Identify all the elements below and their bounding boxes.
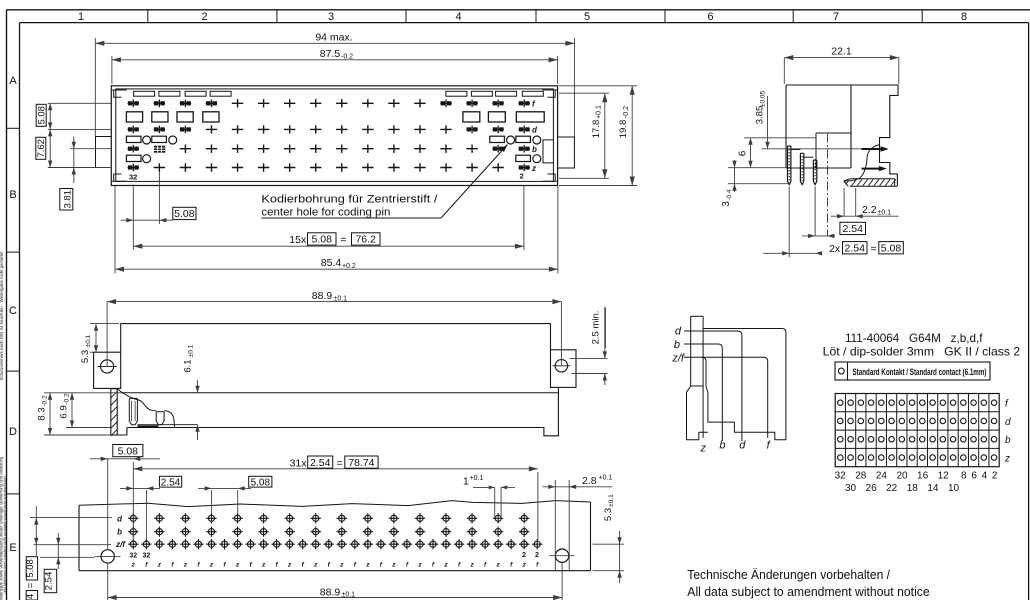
svg-text:b: b [532, 145, 537, 154]
svg-text:2: 2 [520, 172, 524, 181]
svg-text:und Mitteilung ihres Inhaltes: und Mitteilung ihres Inhaltes nicht gest… [3, 476, 7, 593]
svg-text:20: 20 [896, 471, 908, 482]
svg-text:10: 10 [948, 483, 960, 494]
svg-text:24: 24 [876, 471, 888, 482]
svg-text:12: 12 [938, 471, 950, 482]
svg-text:4: 4 [25, 594, 36, 599]
svg-text:2.2: 2.2 [862, 204, 877, 216]
svg-text:2.54: 2.54 [842, 223, 863, 235]
svg-text:Schutzvermerk nach DIN 34 beac: Schutzvermerk nach DIN 34 beachten · Wei… [0, 251, 4, 381]
svg-text:±0.05: ±0.05 [760, 91, 767, 108]
svg-text:4: 4 [455, 11, 461, 23]
svg-text:+0.1: +0.1 [596, 105, 603, 119]
svg-text:z: z [417, 562, 422, 569]
svg-text:2: 2 [535, 552, 539, 559]
svg-text:2.5 min.: 2.5 min. [591, 311, 602, 345]
svg-text:z: z [1004, 453, 1010, 464]
svg-text:19.8: 19.8 [618, 120, 629, 139]
svg-text:32: 32 [129, 552, 137, 559]
svg-text:3.81: 3.81 [62, 190, 73, 209]
svg-text:4: 4 [982, 471, 988, 482]
svg-text:z: z [157, 562, 162, 569]
svg-text:b: b [1005, 435, 1011, 446]
svg-text:z: z [496, 562, 501, 569]
svg-text:-0.2: -0.2 [64, 393, 71, 405]
svg-text:center hole for coding pin: center hole for coding pin [261, 207, 390, 219]
svg-text:d: d [675, 325, 682, 337]
svg-text:5.08: 5.08 [36, 106, 47, 125]
svg-text:8: 8 [961, 471, 967, 482]
svg-text:±0.1: ±0.1 [608, 494, 615, 507]
svg-text:8.3: 8.3 [37, 407, 48, 420]
svg-text:z/f: z/f [115, 540, 126, 549]
svg-text:b: b [719, 440, 725, 452]
svg-text:B: B [9, 189, 16, 201]
svg-text:z: z [131, 562, 136, 569]
svg-text:d: d [1005, 417, 1011, 428]
svg-text:d: d [739, 440, 746, 452]
svg-text:31x: 31x [290, 457, 308, 469]
svg-text:b: b [674, 339, 680, 351]
svg-text:z: z [469, 562, 474, 569]
svg-text:3.85: 3.85 [755, 106, 766, 125]
svg-text:5: 5 [584, 11, 590, 23]
svg-text:1: 1 [78, 11, 84, 23]
svg-text:=: = [25, 582, 36, 588]
svg-text:+0.2: +0.2 [342, 263, 356, 270]
svg-text:-0.2: -0.2 [42, 395, 49, 407]
svg-text:32: 32 [835, 471, 847, 482]
svg-text:2: 2 [992, 471, 998, 482]
svg-text:5.08: 5.08 [881, 243, 902, 255]
svg-text:±0.1: ±0.1 [85, 334, 92, 347]
svg-text:5.08: 5.08 [251, 477, 271, 488]
svg-text:85.4: 85.4 [321, 257, 342, 269]
svg-text:All data subject to amendment: All data subject to amendment without no… [687, 585, 929, 599]
svg-text:22.1: 22.1 [831, 45, 852, 57]
svg-text:2.54: 2.54 [310, 457, 331, 469]
svg-text:3: 3 [721, 201, 732, 207]
svg-text:2.54: 2.54 [844, 243, 865, 255]
svg-text:2.54: 2.54 [161, 477, 181, 488]
svg-text:5.08: 5.08 [311, 234, 332, 246]
svg-text:32: 32 [129, 172, 137, 181]
svg-text:6: 6 [737, 150, 748, 156]
svg-text:5.08: 5.08 [118, 445, 139, 457]
svg-text:Löt / dip-solder 3mm GK II /: Löt / dip-solder 3mm GK II / class 2 [823, 344, 1021, 358]
svg-text:5.3: 5.3 [603, 508, 614, 521]
svg-text:±0.1: ±0.1 [334, 295, 348, 302]
svg-text:18: 18 [907, 483, 919, 494]
svg-text:76.2: 76.2 [355, 234, 376, 246]
svg-text:A: A [9, 75, 17, 87]
svg-text:=: = [871, 243, 877, 255]
svg-text:=: = [337, 457, 343, 469]
svg-text:z: z [365, 562, 370, 569]
svg-text:+0.1: +0.1 [470, 475, 484, 482]
svg-text:111-40064 G64M z,b,d,f: 111-40064 G64M z,b,d,f [845, 331, 983, 345]
svg-text:2: 2 [522, 552, 526, 559]
svg-text:8: 8 [961, 11, 967, 23]
svg-text:z: z [391, 562, 396, 569]
svg-text:2.54: 2.54 [43, 572, 54, 591]
svg-text:7: 7 [833, 11, 839, 23]
svg-text:Standard Kontakt / Standard co: Standard Kontakt / Standard contact (6.1… [853, 367, 987, 378]
svg-text:z: z [235, 562, 240, 569]
svg-text:88.9: 88.9 [320, 586, 341, 598]
svg-text:±0.1: ±0.1 [342, 592, 356, 599]
svg-text:5.08: 5.08 [174, 208, 195, 220]
svg-text:-0.2: -0.2 [341, 54, 353, 61]
svg-text:28: 28 [855, 471, 867, 482]
svg-text:C: C [9, 305, 17, 317]
svg-text:14: 14 [927, 483, 939, 494]
svg-text:b: b [117, 528, 122, 537]
svg-text:78.74: 78.74 [348, 457, 374, 469]
svg-text:7.62: 7.62 [36, 139, 47, 158]
svg-text:z: z [183, 562, 188, 569]
svg-text:z: z [313, 562, 318, 569]
svg-text:-0.2: -0.2 [623, 106, 630, 118]
svg-text:+0.1: +0.1 [599, 474, 613, 481]
svg-text:6: 6 [971, 471, 977, 482]
svg-text:2x: 2x [829, 243, 841, 255]
svg-text:1: 1 [463, 475, 469, 487]
svg-text:17.8: 17.8 [591, 120, 602, 139]
svg-text:5.3: 5.3 [80, 350, 91, 363]
svg-text:32: 32 [143, 552, 151, 559]
svg-text:=: = [340, 234, 346, 246]
svg-text:15x: 15x [289, 234, 307, 246]
svg-text:6: 6 [707, 11, 713, 23]
svg-text:2.8: 2.8 [582, 475, 597, 487]
svg-text:z: z [261, 562, 266, 569]
svg-text:6.9: 6.9 [59, 405, 70, 418]
svg-text:-0.4: -0.4 [726, 189, 733, 201]
svg-text:z: z [443, 562, 448, 569]
svg-text:2: 2 [201, 11, 207, 23]
svg-text:±0.1: ±0.1 [878, 210, 892, 217]
svg-text:88.9: 88.9 [312, 290, 333, 302]
svg-text:26: 26 [866, 483, 878, 494]
svg-text:z: z [339, 562, 344, 569]
svg-text:3: 3 [328, 11, 334, 23]
svg-text:5.08: 5.08 [25, 559, 36, 578]
svg-text:E: E [9, 542, 16, 554]
svg-text:16: 16 [917, 471, 929, 482]
svg-text:6.1: 6.1 [183, 359, 194, 372]
svg-text:z: z [209, 562, 214, 569]
svg-text:94 max.: 94 max. [315, 32, 352, 44]
svg-text:z: z [700, 443, 707, 455]
svg-text:z/f: z/f [671, 352, 685, 364]
svg-text:30: 30 [845, 483, 857, 494]
svg-text:z: z [531, 164, 536, 173]
svg-text:Kodierbohrung für Zentrierstif: Kodierbohrung für Zentrierstift / [261, 193, 437, 205]
svg-text:Technische Änderungen vorbehal: Technische Änderungen vorbehalten / [687, 568, 890, 582]
svg-text:87.5: 87.5 [320, 48, 341, 60]
svg-text:±0.1: ±0.1 [188, 344, 195, 357]
svg-text:D: D [9, 426, 17, 438]
svg-text:z: z [287, 562, 292, 569]
svg-text:22: 22 [886, 483, 898, 494]
svg-text:z: z [522, 562, 527, 569]
